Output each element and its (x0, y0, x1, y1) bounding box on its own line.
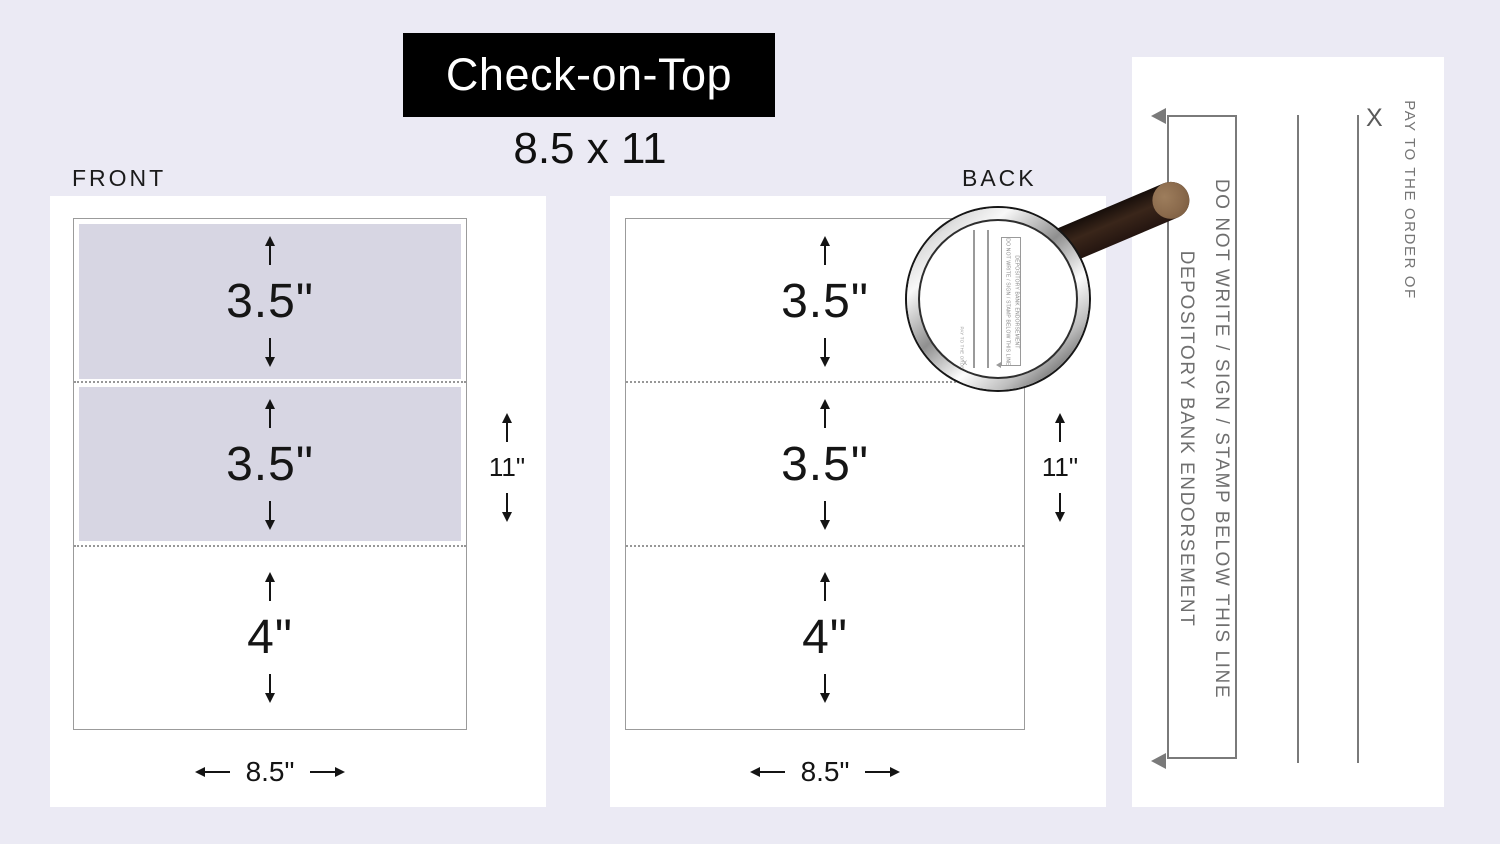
arrow-down-icon (824, 501, 826, 521)
perforation-line (626, 545, 1024, 547)
arrow-down-icon (269, 338, 271, 358)
width-dimension-label: 8.5" (246, 756, 295, 788)
section-height-label: 3.5" (226, 437, 314, 492)
perforation-line (74, 545, 466, 547)
back-height-dimension: 11" (1040, 422, 1080, 513)
arrow-left-icon (759, 771, 785, 773)
mini-signature-x-mark: X (963, 361, 967, 367)
endorsement-signature-line (1297, 115, 1299, 763)
arrow-right-icon (310, 771, 336, 773)
height-dimension-label: 11" (1042, 452, 1078, 483)
arrow-down-icon (269, 501, 271, 521)
section-height-label: 3.5" (781, 274, 869, 329)
check-back-detail-card: DO NOT WRITE / SIGN / STAMP BELOW THIS L… (1132, 57, 1444, 807)
section-height-label: 3.5" (781, 437, 869, 492)
arrow-up-icon (506, 422, 508, 442)
mini-depository-bank-text: DEPOSITORY BANK ENDORSEMENT (1012, 255, 1021, 348)
back-width-dimension: 8.5" (625, 756, 1025, 788)
arrow-down-icon (506, 493, 508, 513)
perforation-line (74, 381, 466, 383)
arrow-up-icon (269, 408, 271, 428)
height-dimension-label: 11" (489, 452, 525, 483)
arrow-up-icon (824, 245, 826, 265)
arrow-left-icon (204, 771, 230, 773)
mini-do-not-write-text: DO NOT WRITE / SIGN / STAMP BELOW THIS L… (1003, 238, 1012, 365)
mini-signature-line (973, 230, 975, 368)
arrow-up-icon (1059, 422, 1061, 442)
arrow-down-icon (824, 674, 826, 694)
signature-x-mark: X (1366, 104, 1383, 133)
front-check-stub-middle: 3.5" (79, 387, 461, 541)
front-height-dimension: 11" (487, 422, 527, 513)
arrow-down-icon (824, 338, 826, 358)
section-height-label: 4" (247, 610, 293, 665)
endorsement-signature-line (1357, 115, 1359, 763)
arrow-left-icon (1151, 108, 1166, 124)
do-not-write-text: DO NOT WRITE / SIGN / STAMP BELOW THIS L… (1204, 179, 1239, 699)
depository-bank-text: DEPOSITORY BANK ENDORSEMENT (1169, 251, 1204, 628)
magnifier-glass-icon: PAY TO THE ORDER OF X DEPOSITORY BANK EN… (907, 208, 1089, 390)
poster: Check-on-Top 8.5 x 11 FRONT 3.5" 3.5" 4" (0, 0, 1500, 844)
front-sheet: 3.5" 3.5" 4" (73, 218, 467, 730)
arrow-up-icon (824, 581, 826, 601)
back-section-bottom: 4" (631, 549, 1019, 725)
magnifier-lens: PAY TO THE ORDER OF X DEPOSITORY BANK EN… (920, 221, 1076, 377)
sheet-size-label: 8.5 x 11 (440, 124, 740, 174)
front-check-stub-top: 3.5" (79, 224, 461, 379)
arrow-left-icon (1151, 753, 1166, 769)
arrow-up-icon (269, 581, 271, 601)
front-panel: 3.5" 3.5" 4" (50, 196, 546, 807)
width-dimension-label: 8.5" (801, 756, 850, 788)
back-label: BACK (962, 165, 1037, 192)
pay-to-the-order-of-text: PAY TO THE ORDER OF (1400, 112, 1420, 288)
section-height-label: 4" (802, 610, 848, 665)
front-width-dimension: 8.5" (73, 756, 467, 788)
arrow-right-icon (865, 771, 891, 773)
title-text: Check-on-Top (446, 49, 732, 101)
mini-signature-line (987, 230, 989, 368)
arrow-up-icon (824, 408, 826, 428)
section-height-label: 3.5" (226, 274, 314, 329)
title-banner: Check-on-Top (403, 33, 775, 117)
arrow-down-icon (1059, 493, 1061, 513)
arrow-left-icon (996, 362, 1001, 368)
back-section-middle: 3.5" (631, 387, 1019, 541)
front-bottom-section: 4" (79, 549, 461, 725)
arrow-up-icon (269, 245, 271, 265)
arrow-down-icon (269, 674, 271, 694)
mini-endorsement-warning-text: DEPOSITORY BANK ENDORSEMENT DO NOT WRITE… (1002, 238, 1022, 367)
front-label: FRONT (72, 165, 166, 192)
